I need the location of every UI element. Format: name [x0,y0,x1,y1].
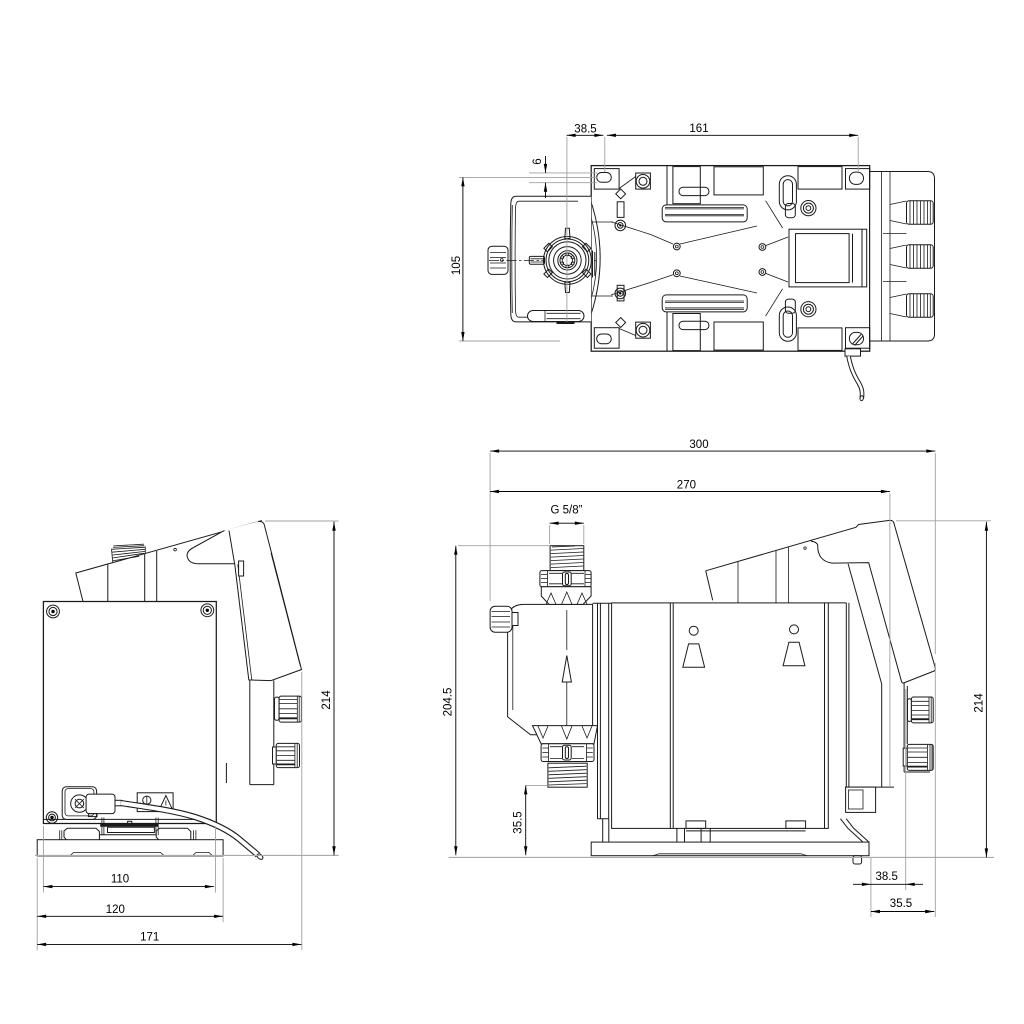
svg-text:G 5/8”: G 5/8” [551,505,583,517]
svg-text:38.5: 38.5 [876,871,898,883]
svg-text:214: 214 [974,693,986,713]
svg-text:204.5: 204.5 [443,688,455,717]
svg-text:35.5: 35.5 [513,811,525,833]
svg-text:270: 270 [677,479,696,491]
svg-text:38.5: 38.5 [574,123,596,135]
svg-text:161: 161 [689,123,708,135]
svg-text:6: 6 [532,158,544,164]
svg-text:300: 300 [689,439,708,451]
svg-text:171: 171 [140,931,159,943]
svg-text:110: 110 [111,874,129,886]
svg-text:214: 214 [321,690,333,710]
svg-text:105: 105 [451,256,463,275]
svg-text:120: 120 [106,904,125,916]
svg-text:35.5: 35.5 [890,898,912,910]
